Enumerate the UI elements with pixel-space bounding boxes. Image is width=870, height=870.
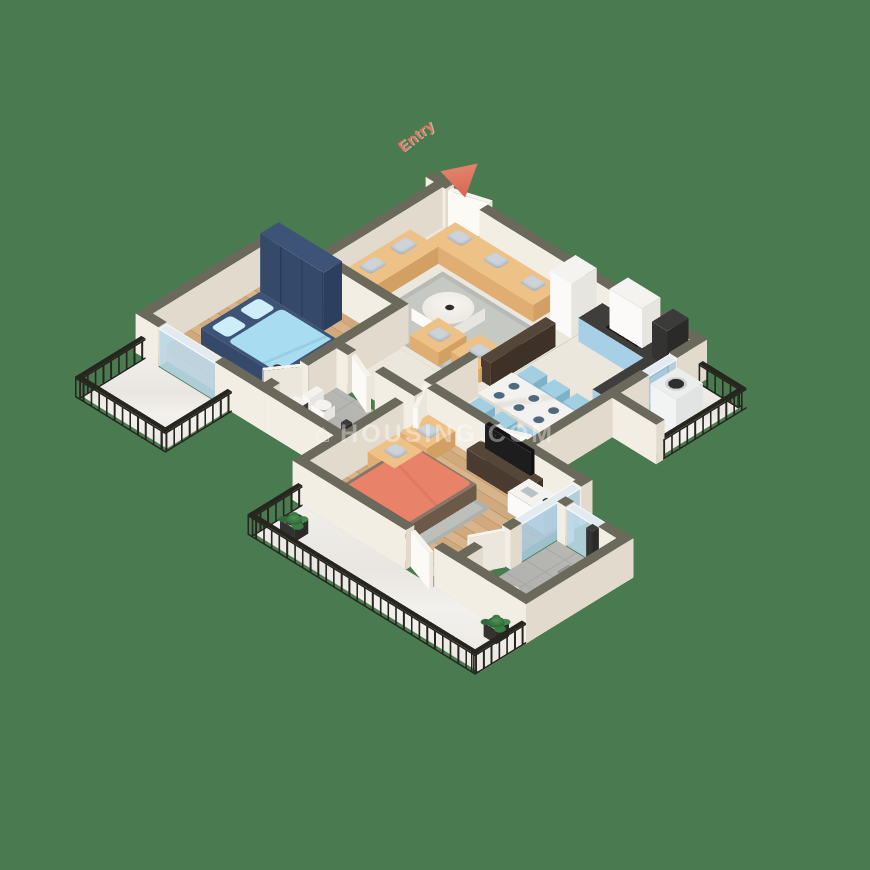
house-icon: ⌂ bbox=[315, 418, 334, 448]
pillow bbox=[358, 256, 388, 274]
chimney-hood bbox=[609, 278, 660, 309]
entry-door bbox=[447, 187, 492, 204]
watermark-text: HOUSING.COM bbox=[340, 420, 555, 448]
pillow bbox=[389, 237, 419, 255]
plant-leaves bbox=[283, 513, 306, 527]
plate bbox=[508, 401, 529, 414]
books bbox=[520, 486, 538, 497]
plate bbox=[523, 392, 544, 405]
pillow bbox=[519, 274, 547, 291]
railing bbox=[699, 361, 743, 388]
plate bbox=[489, 389, 510, 402]
pillow bbox=[445, 229, 473, 246]
watermark: ⌂HOUSING.COM bbox=[0, 418, 870, 449]
entry-label: Entry bbox=[395, 117, 438, 156]
plate bbox=[503, 380, 524, 393]
floor-plan-canvas: { "palette": { "background": "#4a7a50", … bbox=[0, 0, 870, 870]
railing bbox=[75, 336, 146, 380]
pillow bbox=[482, 252, 510, 269]
plate bbox=[543, 404, 564, 417]
table-decor bbox=[443, 304, 456, 312]
